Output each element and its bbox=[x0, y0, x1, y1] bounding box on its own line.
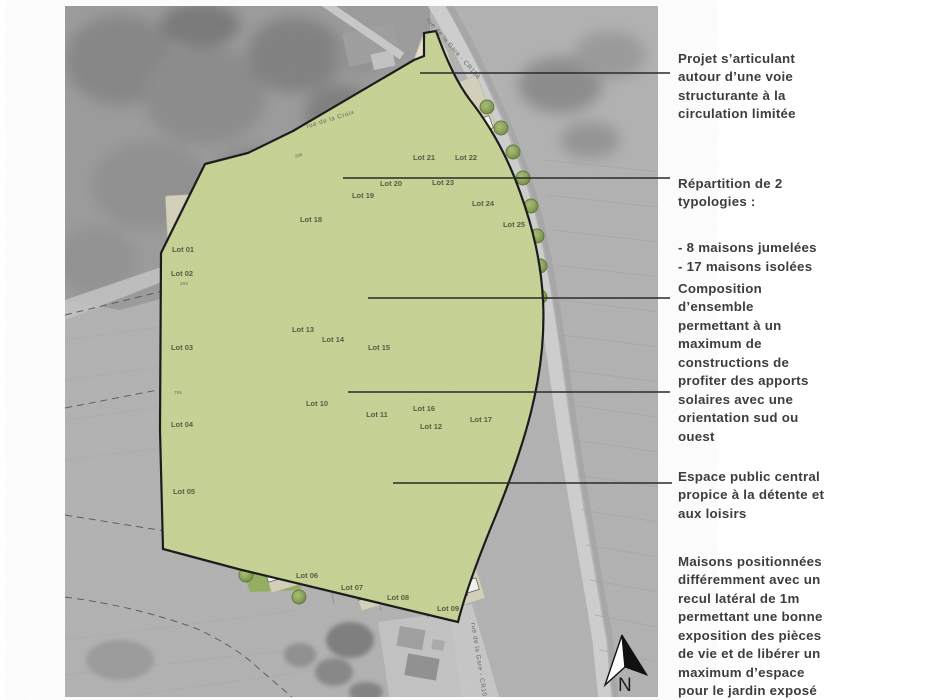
scan-grain-texture bbox=[65, 6, 658, 697]
annotation-text: Espace public central propice à la déten… bbox=[678, 468, 928, 524]
annotation-text: Répartition de 2 typologies : bbox=[678, 175, 928, 212]
annotation-public-space: Espace public central propice à la déten… bbox=[678, 449, 928, 542]
annotation-composition: Composition d’ensemble permettant à un m… bbox=[678, 261, 928, 465]
site-plan-page: 010203040506070809101112131415 Lot 01Lot… bbox=[0, 0, 933, 700]
annotation-project: Projet s’articulant autour d’une voie st… bbox=[678, 31, 928, 142]
annotation-text: Composition d’ensemble permettant à un m… bbox=[678, 280, 928, 447]
north-label: N bbox=[618, 675, 632, 696]
annotation-house-position: Maisons positionnées différemment avec u… bbox=[678, 534, 928, 700]
annotation-text: Projet s’articulant autour d’une voie st… bbox=[678, 50, 928, 124]
annotation-text: Maisons positionnées différemment avec u… bbox=[678, 553, 928, 700]
